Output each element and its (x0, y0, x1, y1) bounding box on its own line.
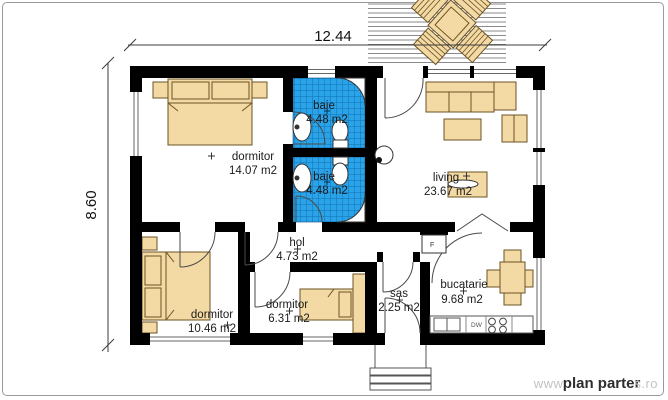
entry-steps (370, 345, 431, 390)
wall-segment (377, 252, 383, 262)
wall-segment (283, 78, 293, 112)
dim-height-label: 8.60 (83, 190, 100, 219)
wall-segment (278, 222, 296, 232)
svg-text:14.07 m2: 14.07 m2 (229, 165, 277, 177)
kitchen-sink (434, 318, 460, 331)
wall-segment (333, 333, 385, 345)
wall-segment (533, 66, 545, 90)
wall-segment (322, 222, 377, 232)
kitchen-chair (504, 250, 521, 263)
wall-segment (420, 333, 545, 345)
wall-segment (142, 222, 180, 232)
wall-segment (365, 262, 377, 333)
armchair (502, 115, 527, 142)
pillow (145, 256, 161, 285)
svg-text:2.25 m2: 2.25 m2 (378, 302, 420, 314)
svg-text:dormitor: dormitor (232, 151, 274, 163)
wall-segment (420, 222, 448, 235)
floor-plan: 12.44 8.60 (0, 0, 668, 400)
wall-segment (230, 333, 303, 345)
nightstand (142, 237, 157, 250)
svg-text:9.68 m2: 9.68 m2 (441, 294, 483, 306)
wall-segment (238, 232, 250, 333)
wall-segment (283, 144, 293, 222)
pillow (145, 288, 161, 317)
svg-text:baie: baie (313, 171, 335, 183)
nightstand (153, 82, 168, 98)
sofa (426, 82, 516, 112)
svg-text:23.67 m2: 23.67 m2 (424, 186, 472, 198)
kitchen-table (500, 262, 525, 293)
svg-text:baie: baie (313, 100, 335, 112)
nightstand (142, 322, 157, 333)
fridge-label: F (430, 242, 434, 249)
kitchen-chair (487, 270, 500, 287)
wall-segment (420, 262, 430, 333)
watermark-prefix: www. (534, 376, 567, 391)
pillow (212, 82, 249, 99)
svg-text:4.73 m2: 4.73 m2 (276, 251, 318, 263)
dim-width-label: 12.44 (314, 28, 352, 45)
wall-segment (533, 185, 545, 258)
svg-text:6.31 m2: 6.31 m2 (268, 313, 310, 325)
svg-text:living: living (433, 172, 459, 184)
wall-segment (238, 262, 255, 272)
svg-text:dormitor: dormitor (191, 309, 233, 321)
wall-segment (413, 252, 420, 262)
dishwasher-label: DW (471, 322, 483, 329)
nightstand (252, 82, 267, 98)
boiler-symbol (375, 146, 393, 164)
watermark: www.plan parters.ro (534, 375, 658, 392)
coffee-table (444, 119, 481, 140)
wall-segment (533, 330, 545, 345)
watermark-brand: plan parter (563, 375, 641, 392)
wall-segment (365, 66, 377, 232)
wall-segment (130, 66, 308, 78)
bed-dormitor-1 (153, 79, 267, 145)
wall-segment (130, 66, 142, 92)
wardrobe (353, 274, 366, 333)
wall-segment (130, 156, 142, 345)
pillow (172, 82, 209, 99)
wall-segment (293, 148, 365, 157)
wall-segment (215, 222, 245, 232)
kitchen-chair (504, 292, 521, 305)
svg-text:dormitor: dormitor (266, 299, 308, 311)
wall-segment (510, 222, 533, 232)
pillow (339, 292, 351, 317)
watermark-suffix: s.ro (634, 376, 658, 391)
svg-text:4.48 m2: 4.48 m2 (306, 114, 348, 126)
kitchen-chair (525, 270, 533, 287)
wall-segment (423, 66, 428, 78)
wall-segment (290, 262, 365, 272)
svg-text:4.48 m2: 4.48 m2 (306, 185, 348, 197)
